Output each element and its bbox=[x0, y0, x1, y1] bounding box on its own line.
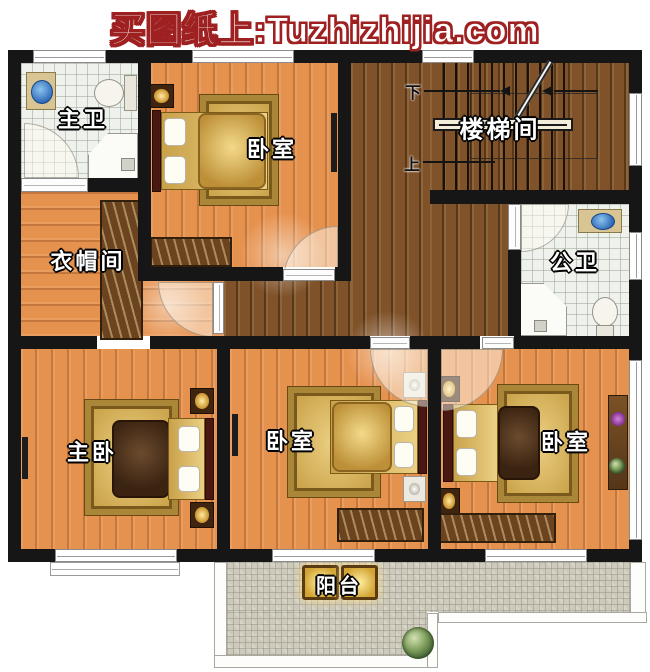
wall-interior bbox=[150, 336, 370, 349]
tv bbox=[232, 414, 238, 456]
bed-headboard bbox=[205, 418, 214, 500]
room-label-cloakroom: 衣帽间 bbox=[50, 244, 125, 276]
wall-interior bbox=[335, 267, 351, 281]
shower-drain bbox=[534, 320, 547, 332]
bed-quilt bbox=[332, 402, 392, 472]
window bbox=[629, 93, 642, 166]
wall-interior bbox=[338, 63, 351, 281]
wall-interior bbox=[430, 190, 642, 204]
window-sill bbox=[50, 562, 180, 576]
wall-interior bbox=[88, 178, 151, 192]
room-label-bedroom-right: 卧室 bbox=[541, 425, 591, 457]
room-label-master-bedroom: 主卧 bbox=[67, 435, 117, 467]
potted-plant bbox=[609, 458, 625, 474]
bed-pillow bbox=[394, 406, 414, 432]
nightstand bbox=[190, 502, 214, 528]
nightstand bbox=[149, 84, 174, 108]
window bbox=[272, 549, 375, 562]
wall-interior bbox=[410, 336, 480, 349]
room-label-balcony: 阳台 bbox=[316, 570, 362, 599]
stair-up-label: 上 bbox=[404, 151, 420, 175]
balcony-parapet bbox=[630, 562, 646, 613]
door-leaf bbox=[283, 269, 335, 281]
bathroom-vanity bbox=[26, 72, 56, 110]
bed-headboard bbox=[443, 404, 453, 482]
floor-plan: 买图纸上:Tuzhizhijia.com bbox=[0, 0, 650, 672]
toilet-bowl bbox=[592, 297, 618, 327]
door-leaf bbox=[370, 337, 410, 349]
wall-interior bbox=[428, 349, 441, 549]
bed-pillow bbox=[456, 410, 477, 438]
shower-drain bbox=[121, 158, 135, 171]
toilet-tank bbox=[124, 75, 137, 111]
bed-pillow bbox=[178, 466, 200, 492]
bed-quilt bbox=[498, 406, 540, 480]
wall-interior bbox=[514, 336, 642, 349]
nightstand bbox=[190, 388, 214, 414]
balcony-parapet bbox=[438, 612, 647, 623]
arrow-left-icon bbox=[542, 86, 552, 96]
wall-interior bbox=[508, 250, 521, 336]
hallway-floor bbox=[351, 63, 430, 336]
sink-basin bbox=[31, 80, 53, 104]
room-label-stairwell: 楼梯间 bbox=[460, 110, 541, 145]
bathroom-vanity bbox=[578, 209, 622, 233]
room-label-bedroom-top: 卧室 bbox=[247, 132, 297, 164]
stair-direction-line bbox=[554, 90, 598, 92]
tv bbox=[331, 113, 337, 172]
bed-pillow bbox=[164, 156, 186, 184]
site-watermark: 买图纸上:Tuzhizhijia.com bbox=[0, 2, 650, 53]
room-label-public-bath: 公卫 bbox=[550, 245, 600, 277]
wall-interior bbox=[138, 267, 283, 281]
stair-down-label: 下 bbox=[405, 79, 421, 103]
arrow-left-icon bbox=[500, 86, 510, 96]
door-leaf bbox=[508, 204, 521, 250]
tv bbox=[22, 437, 28, 479]
nightstand bbox=[438, 488, 460, 514]
bed-headboard bbox=[418, 400, 427, 474]
bed-pillow bbox=[394, 442, 414, 468]
bed bbox=[330, 400, 427, 474]
window bbox=[629, 360, 642, 540]
bed-headboard bbox=[152, 110, 161, 192]
stair-direction-line bbox=[424, 90, 500, 92]
wardrobe bbox=[437, 513, 556, 543]
door-leaf bbox=[21, 178, 88, 192]
wall-interior bbox=[217, 349, 230, 549]
door-leaf bbox=[213, 282, 224, 334]
bed bbox=[443, 404, 540, 482]
wardrobe bbox=[337, 508, 424, 542]
wall-outer-left bbox=[8, 50, 21, 562]
room-balcony-floor bbox=[227, 562, 630, 612]
flower-pot bbox=[611, 412, 625, 426]
balcony-plant bbox=[402, 627, 434, 659]
hallway-floor-2 bbox=[430, 204, 508, 336]
wall-interior bbox=[21, 336, 97, 349]
window bbox=[485, 549, 587, 562]
balcony-parapet bbox=[214, 562, 227, 668]
window bbox=[55, 549, 177, 562]
dresser bbox=[608, 395, 628, 490]
bed-quilt bbox=[112, 420, 170, 498]
room-label-master-bath: 主卫 bbox=[58, 102, 108, 134]
wall-interior bbox=[138, 63, 151, 281]
nightstand bbox=[403, 476, 426, 502]
bed-pillow bbox=[164, 118, 186, 146]
bed bbox=[112, 418, 214, 500]
wardrobe bbox=[150, 237, 232, 267]
room-balcony-floor-2 bbox=[227, 612, 427, 657]
room-label-bedroom-middle: 卧室 bbox=[266, 424, 316, 456]
sink-basin bbox=[591, 213, 615, 230]
door-leaf bbox=[482, 337, 514, 349]
balcony-parapet bbox=[214, 655, 438, 668]
bed-pillow bbox=[456, 448, 477, 476]
bed-pillow bbox=[178, 426, 200, 452]
window bbox=[629, 232, 642, 280]
stair-direction-line bbox=[423, 161, 495, 163]
